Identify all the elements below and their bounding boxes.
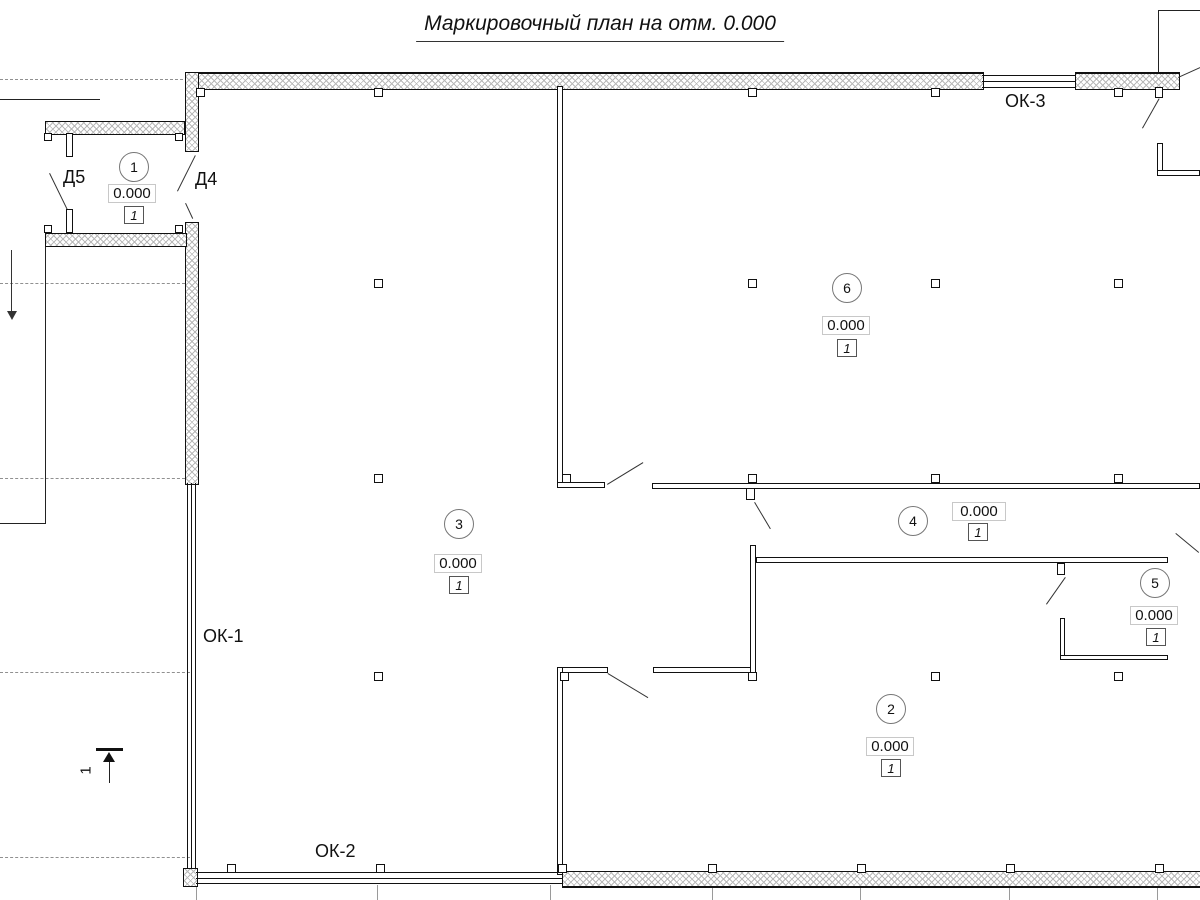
floorplan-canvas: Маркировочный план на отм. 0.000 — [0, 0, 1200, 900]
wall-top-right-segment — [1075, 72, 1180, 90]
column-square — [1155, 864, 1164, 873]
topright-stub-h — [1158, 10, 1200, 11]
column-square — [374, 88, 383, 97]
window-label-ok2: ОК-2 — [315, 841, 356, 862]
partition-v2 — [557, 667, 563, 875]
wall-top-left-segment — [185, 72, 984, 90]
door-swing-line — [607, 673, 648, 698]
room-elevation-box: 0.000 — [108, 184, 156, 203]
room-number: 4 — [909, 513, 917, 529]
corridor-end-square — [175, 225, 183, 233]
door-label-d4: Д4 — [195, 169, 217, 190]
drawing-title: Маркировочный план на отм. 0.000 — [416, 12, 784, 42]
column-square — [857, 864, 866, 873]
wall-left-upper-segment — [185, 72, 199, 152]
column-square — [560, 672, 569, 681]
door-jamb-tick — [66, 209, 73, 233]
door-jamb-tick — [1057, 563, 1065, 575]
column-square — [376, 864, 385, 873]
room-number-circle: 1 — [119, 152, 149, 182]
column-square — [931, 474, 940, 483]
room-floor-type-box: 1 — [968, 523, 988, 541]
door-jamb-tick — [746, 488, 755, 500]
column-square — [562, 474, 571, 483]
partition-h3 — [756, 557, 1168, 563]
room-elevation: 0.000 — [439, 555, 477, 572]
column-square — [196, 88, 205, 97]
room-floor-type: 1 — [974, 525, 981, 540]
door-label-d5: Д5 — [63, 167, 85, 188]
room-floor-type-box: 1 — [1146, 628, 1166, 646]
wall-left-lower-segment — [185, 222, 199, 485]
room-floor-type: 1 — [843, 341, 850, 356]
corridor-end-square — [175, 133, 183, 141]
grid-stub-line — [550, 885, 551, 900]
room-number-circle: 3 — [444, 509, 474, 539]
window-label-ok3: ОК-3 — [1005, 91, 1046, 112]
column-square — [931, 279, 940, 288]
partition-v1 — [557, 86, 563, 483]
room-elevation: 0.000 — [827, 317, 865, 334]
leader-line — [754, 502, 771, 529]
column-square — [1006, 864, 1015, 873]
room-number-circle: 2 — [876, 694, 906, 724]
column-square — [1114, 474, 1123, 483]
section-arrow-head — [103, 752, 115, 762]
annex-wall-v — [45, 247, 46, 524]
door-swing-line — [185, 203, 193, 219]
room-number: 3 — [455, 516, 463, 532]
leader-line — [1178, 67, 1200, 78]
room-number-circle: 4 — [898, 506, 928, 536]
column-square — [374, 474, 383, 483]
room-elevation-box: 0.000 — [1130, 606, 1178, 625]
centerline-dash — [0, 283, 185, 284]
centerline-dash — [0, 478, 185, 479]
room-floor-type-box: 1 — [449, 576, 469, 594]
room-elevation-box: 0.000 — [434, 554, 482, 573]
window-ok1-band — [187, 483, 196, 868]
annex-roof-line — [0, 99, 100, 100]
room-floor-type: 1 — [130, 208, 137, 223]
column-square — [748, 474, 757, 483]
column-square — [748, 88, 757, 97]
centerline-dash — [0, 857, 190, 858]
partition-l-topright-h — [1157, 170, 1200, 176]
column-square — [1114, 672, 1123, 681]
topright-stub-v — [1158, 10, 1159, 73]
section-mark-bar — [96, 748, 123, 751]
room-elevation-box: 0.000 — [952, 502, 1006, 521]
corridor-wall-lower — [45, 233, 187, 247]
column-square — [931, 672, 940, 681]
room-elevation: 0.000 — [1135, 607, 1173, 624]
corridor-end-square — [44, 133, 52, 141]
room-number: 2 — [887, 701, 895, 717]
room-number: 6 — [843, 280, 851, 296]
room-floor-type: 1 — [887, 761, 894, 776]
window-label-ok1: ОК-1 — [203, 626, 244, 647]
door-jamb-tick — [66, 133, 73, 157]
room-number-circle: 6 — [832, 273, 862, 303]
leader-line — [1046, 577, 1066, 605]
partition-h2 — [653, 667, 756, 673]
room-number: 1 — [130, 159, 138, 175]
room-number-circle: 5 — [1140, 568, 1170, 598]
column-square — [931, 88, 940, 97]
column-square — [227, 864, 236, 873]
room-floor-type-box: 1 — [881, 759, 901, 777]
partition-l-bottomright-h — [1060, 655, 1168, 660]
room-elevation: 0.000 — [113, 185, 151, 202]
window-ok2-band — [196, 872, 562, 884]
room-floor-type: 1 — [455, 578, 462, 593]
column-square — [558, 864, 567, 873]
room-floor-type-box: 1 — [837, 339, 857, 357]
annex-wall-h — [0, 523, 46, 524]
corridor-end-square — [44, 225, 52, 233]
room-floor-type: 1 — [1152, 630, 1159, 645]
annex-arrow-head — [7, 311, 17, 320]
column-square — [1114, 279, 1123, 288]
centerline-dash — [0, 79, 183, 80]
column-square — [1114, 88, 1123, 97]
room-number: 5 — [1151, 575, 1159, 591]
leader-line — [1142, 98, 1160, 128]
room-floor-type-box: 1 — [124, 206, 144, 224]
room-elevation-box: 0.000 — [866, 737, 914, 756]
door-swing-line — [177, 155, 196, 191]
room-elevation-box: 0.000 — [822, 316, 870, 335]
door-swing-line — [607, 462, 643, 485]
grid-stub-line — [377, 885, 378, 900]
column-square — [708, 864, 717, 873]
door-jamb-tick — [1155, 87, 1163, 98]
column-square — [748, 672, 757, 681]
partition-h1 — [652, 483, 1200, 489]
leader-line — [1175, 533, 1199, 553]
room-elevation: 0.000 — [960, 503, 998, 520]
partition-v3 — [750, 545, 756, 673]
column-square — [748, 279, 757, 288]
partition-l-bottomright-v — [1060, 618, 1065, 660]
annex-arrow-stem — [11, 250, 12, 312]
window-ok3-band — [982, 75, 1075, 88]
centerline-dash — [0, 672, 190, 673]
column-square — [374, 672, 383, 681]
section-mark-number: 1 — [78, 766, 95, 774]
grid-stub-line — [196, 885, 197, 900]
wall-bottom-right-segment — [562, 871, 1200, 888]
room-elevation: 0.000 — [871, 738, 909, 755]
column-square — [374, 279, 383, 288]
